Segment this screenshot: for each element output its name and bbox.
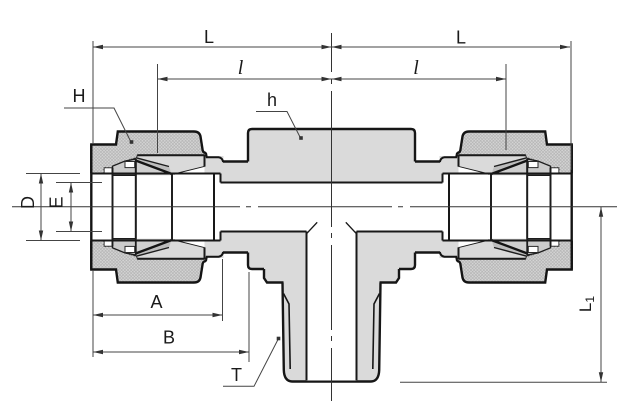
svg-text:D: D bbox=[18, 196, 38, 209]
svg-text:L: L bbox=[204, 27, 214, 47]
svg-text:B: B bbox=[163, 328, 175, 348]
svg-text:l: l bbox=[238, 57, 244, 79]
svg-text:T: T bbox=[231, 365, 242, 385]
svg-text:E: E bbox=[47, 196, 67, 208]
svg-text:L: L bbox=[456, 28, 466, 48]
svg-text:A: A bbox=[150, 292, 162, 312]
svg-text:L1: L1 bbox=[576, 296, 597, 312]
svg-text:h: h bbox=[267, 90, 277, 110]
svg-text:H: H bbox=[73, 86, 86, 106]
svg-text:l: l bbox=[413, 57, 419, 79]
